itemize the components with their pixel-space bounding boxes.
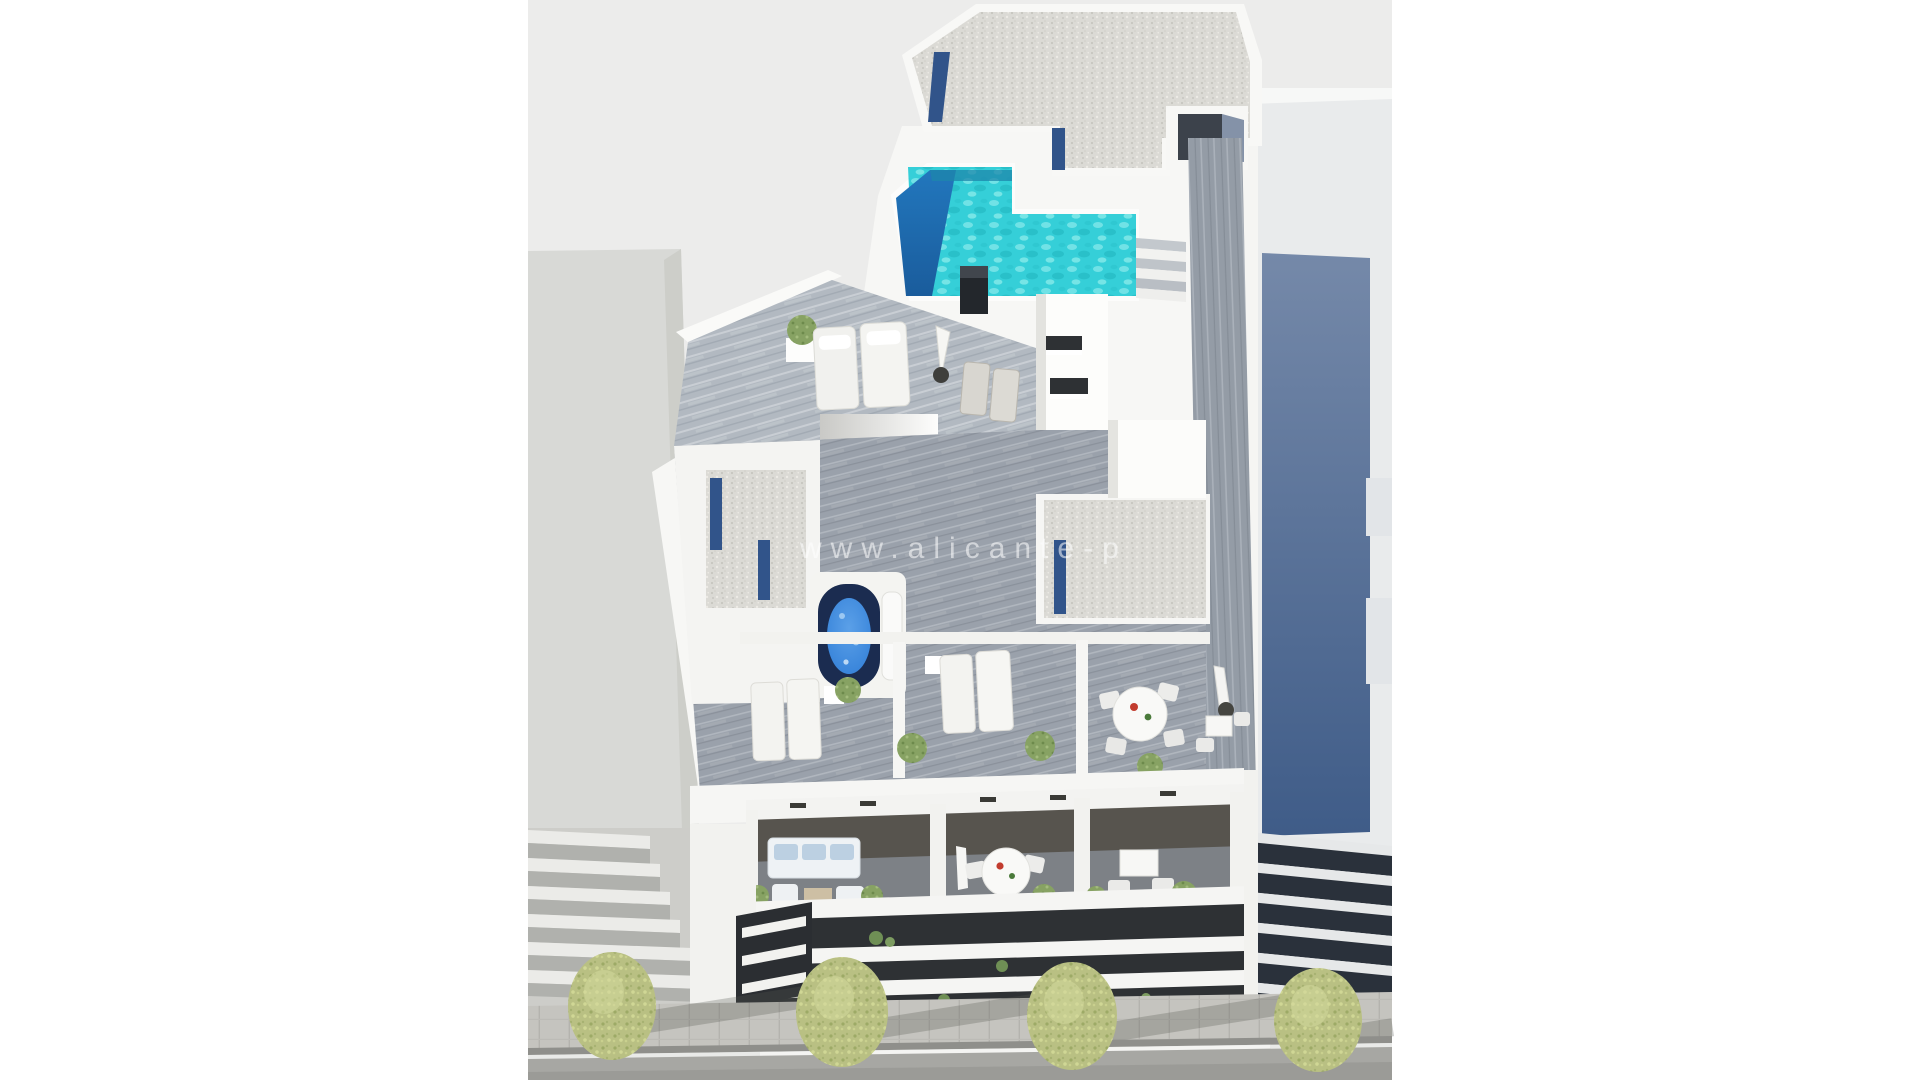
terrace-back-wall <box>740 632 1210 644</box>
mid-terrace <box>674 420 1250 792</box>
right-building-glass-panel <box>1262 253 1370 836</box>
roof-skylight-strip <box>1052 128 1065 170</box>
street-tree <box>568 952 656 1060</box>
street-tree <box>1027 962 1117 1070</box>
divider-wall <box>1074 798 1090 904</box>
bush <box>787 315 817 345</box>
street-tree <box>1274 968 1362 1072</box>
divider-wall <box>930 804 946 910</box>
pool-ladder <box>960 266 988 314</box>
street-tree <box>796 957 888 1067</box>
architectural-render: www.alicante-p <box>0 0 1920 1080</box>
stair-core <box>1036 294 1108 430</box>
watermark: www.alicante-p <box>799 532 1128 565</box>
page-background: www.alicante-p <box>0 0 1920 1080</box>
right-neighbor-building <box>1250 88 1392 1080</box>
gravel-patch <box>706 470 806 608</box>
bush <box>897 733 927 763</box>
pool-stairs <box>1136 238 1186 302</box>
bush <box>835 677 861 703</box>
bush <box>1025 731 1055 761</box>
divider-wall <box>1076 640 1088 778</box>
divider-wall <box>1230 792 1244 898</box>
